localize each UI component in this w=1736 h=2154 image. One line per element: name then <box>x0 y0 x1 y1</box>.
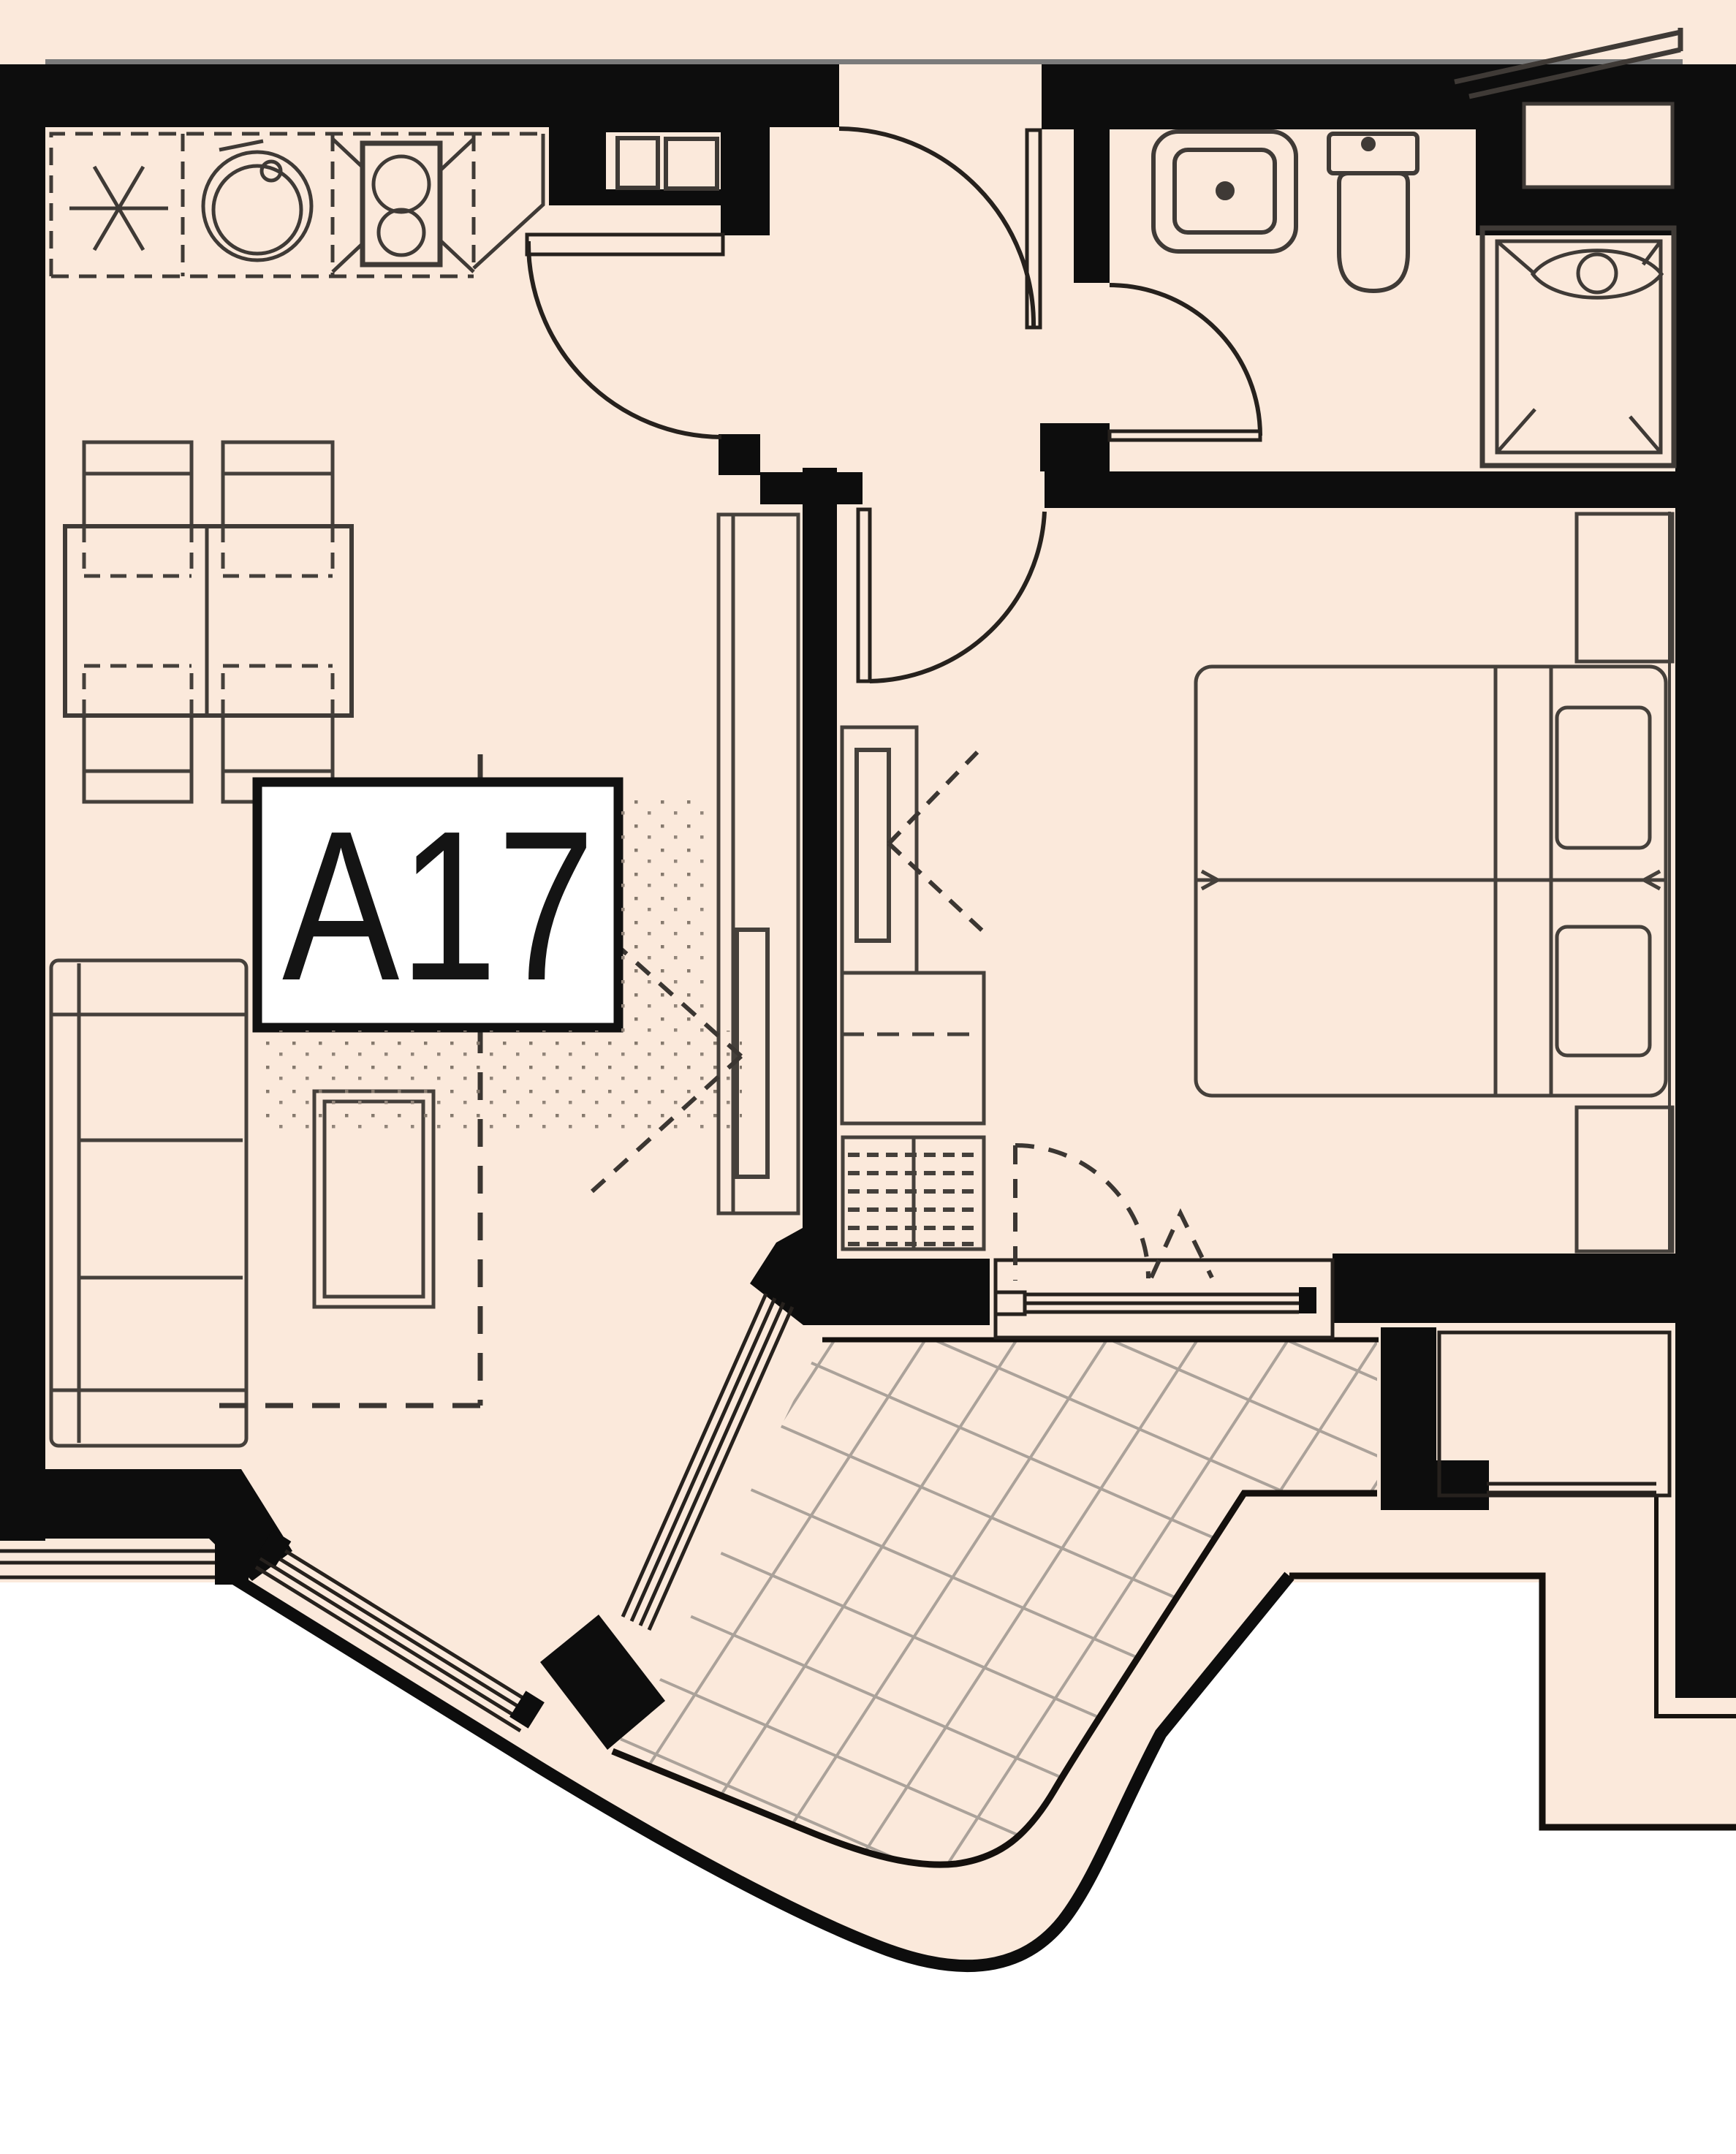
svg-text:A17: A17 <box>282 786 595 1025</box>
